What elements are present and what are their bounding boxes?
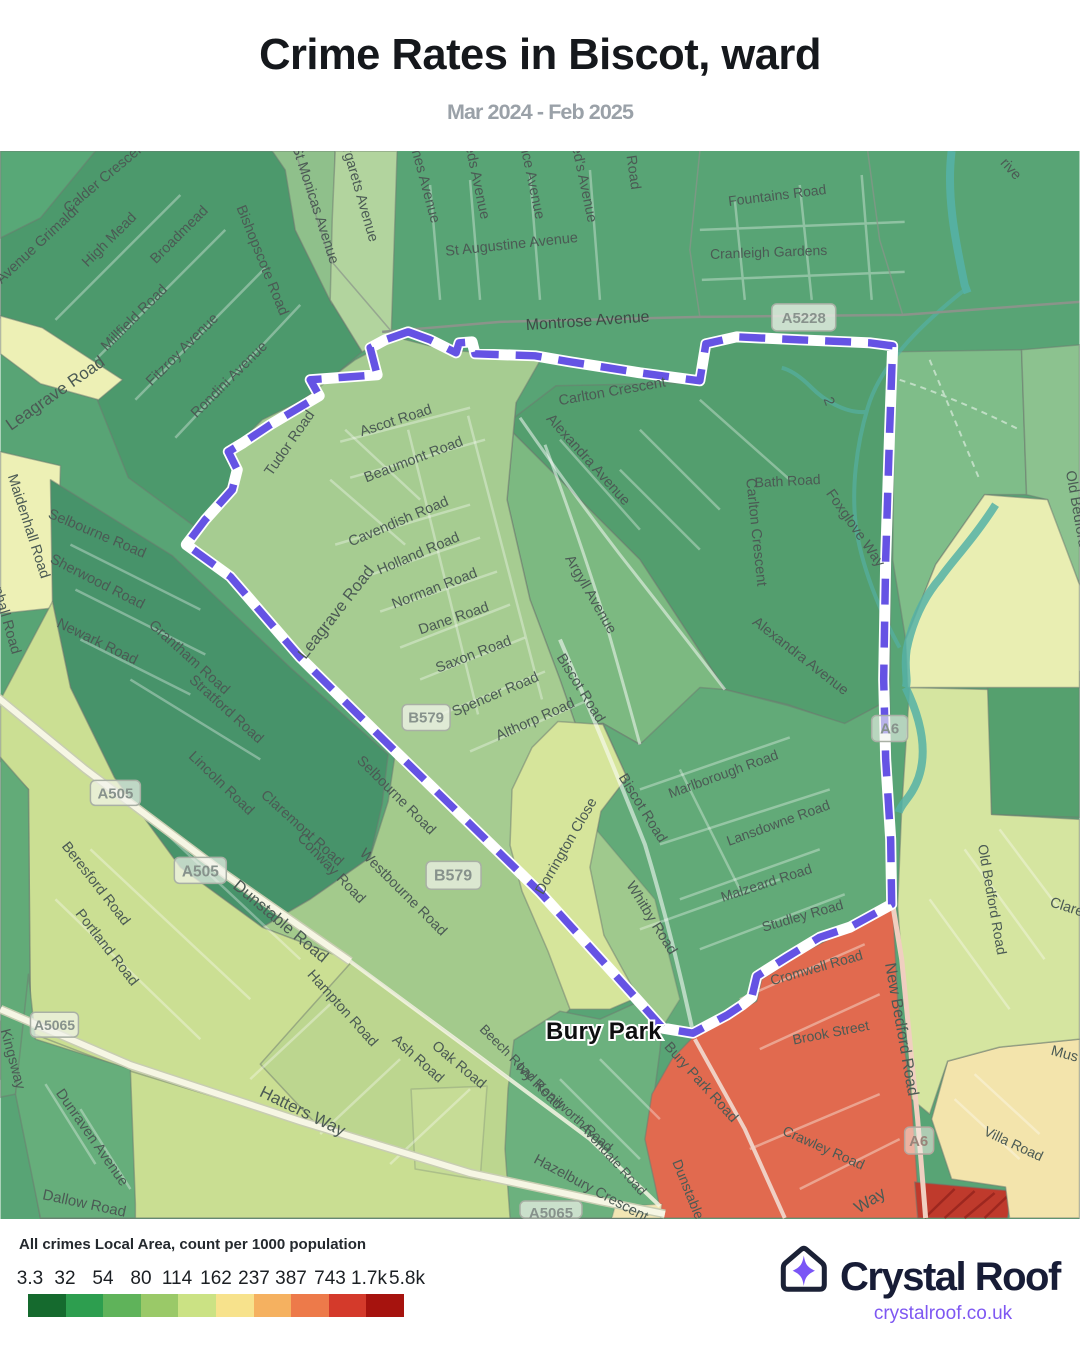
svg-text:A5228: A5228 — [782, 310, 826, 327]
svg-text:Bury Park: Bury Park — [546, 1018, 662, 1045]
svg-text:B579: B579 — [434, 867, 472, 884]
svg-text:A505: A505 — [97, 785, 133, 802]
svg-text:A6: A6 — [880, 720, 899, 737]
svg-text:A5065: A5065 — [34, 1017, 75, 1033]
svg-text:A5065: A5065 — [529, 1205, 573, 1219]
svg-text:B579: B579 — [408, 709, 444, 726]
svg-text:A505: A505 — [182, 863, 219, 880]
svg-text:A6: A6 — [909, 1133, 928, 1150]
